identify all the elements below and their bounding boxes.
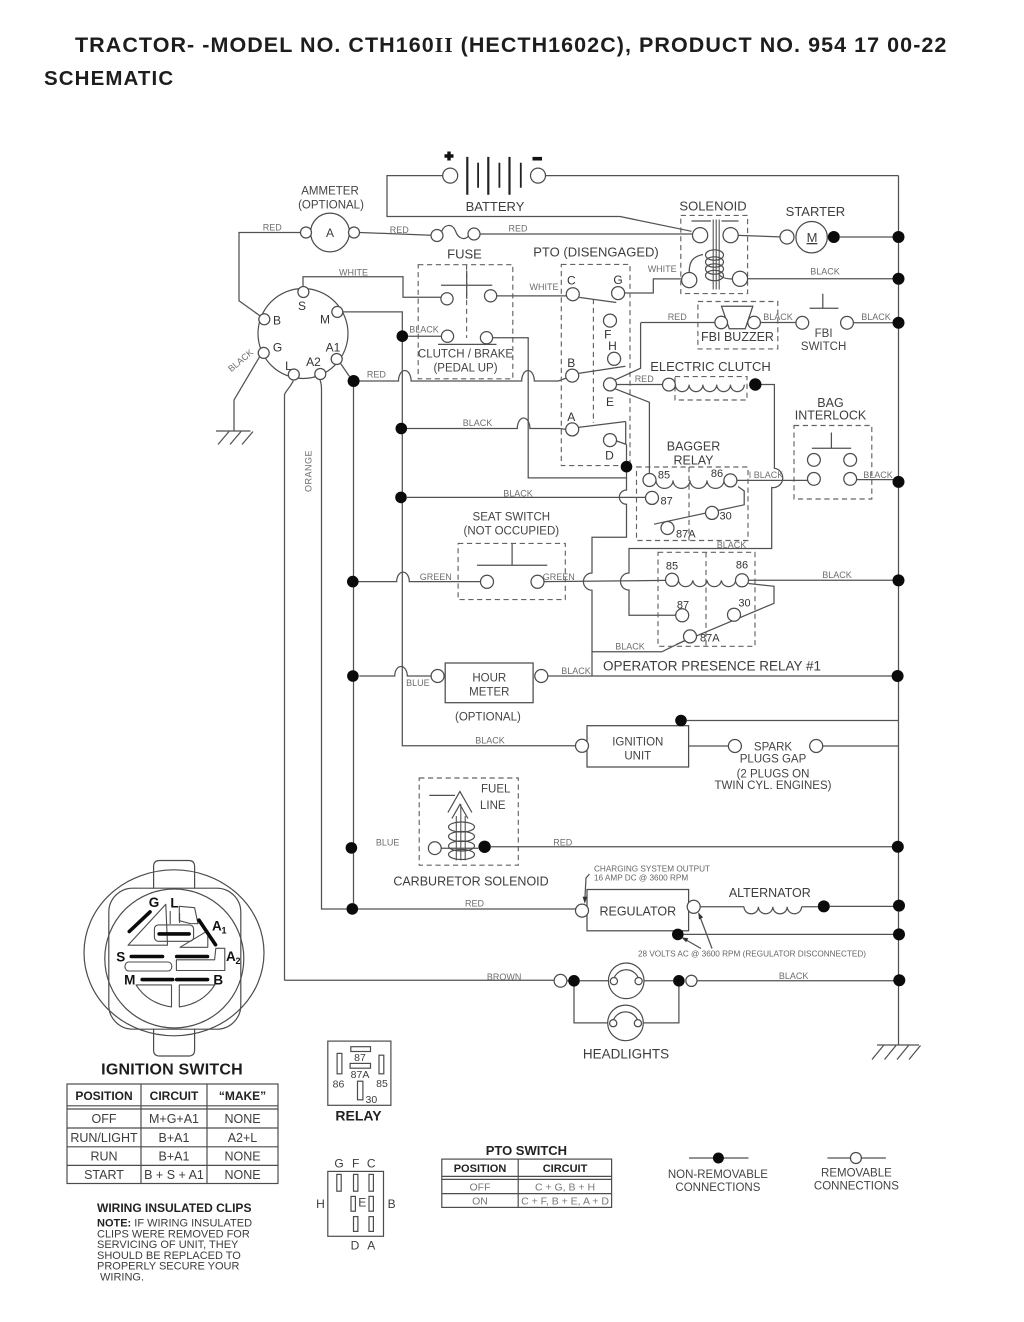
svg-text:L: L [170,896,178,911]
svg-text:INTERLOCK: INTERLOCK [795,408,867,422]
svg-text:E: E [358,1195,366,1209]
svg-text:BAGGER: BAGGER [667,439,721,453]
svg-text:A2: A2 [306,355,321,369]
svg-text:AMMETER: AMMETER [301,186,359,198]
svg-text:SOLENOID: SOLENOID [679,199,746,214]
svg-text:RED: RED [390,225,410,235]
svg-text:RELAY: RELAY [673,453,714,467]
svg-text:A: A [226,949,236,964]
svg-text:C + G, B + H: C + G, B + H [535,1181,595,1193]
svg-text:TWIN CYL. ENGINES): TWIN CYL. ENGINES) [715,780,832,792]
svg-text:CIRCUIT: CIRCUIT [543,1163,588,1175]
svg-text:D: D [605,449,614,463]
svg-text:“MAKE”: “MAKE” [219,1089,266,1103]
svg-text:L: L [285,359,292,373]
svg-text:M+G+A1: M+G+A1 [149,1112,199,1126]
svg-text:RUN: RUN [90,1149,117,1163]
svg-text:METER: METER [469,687,509,699]
svg-text:BLACK: BLACK [763,312,793,322]
svg-text:RED: RED [553,838,573,848]
svg-text:A1: A1 [326,341,341,355]
svg-text:BLACK: BLACK [463,418,493,428]
svg-text:PTO SWITCH: PTO SWITCH [486,1143,567,1158]
svg-text:ELECTRIC CLUTCH: ELECTRIC CLUTCH [650,359,771,374]
svg-text:B: B [567,356,575,370]
svg-text:SEAT SWITCH: SEAT SWITCH [473,512,551,524]
svg-text:S: S [116,950,125,965]
svg-text:BLACK: BLACK [503,488,533,498]
svg-text:CHARGING SYSTEM OUTPUT: CHARGING SYSTEM OUTPUT [594,865,710,874]
svg-text:FUEL: FUEL [481,783,511,795]
svg-text:RED: RED [465,898,485,908]
svg-text:UNIT: UNIT [624,751,651,763]
svg-text:RELAY: RELAY [335,1108,382,1124]
svg-text:SPARK: SPARK [754,742,792,754]
svg-text:S: S [298,299,306,313]
svg-text:H: H [608,339,617,353]
svg-text:ON: ON [472,1195,488,1207]
svg-text:86: 86 [736,560,748,572]
svg-text:BLACK: BLACK [409,325,439,335]
svg-text:PTO (DISENGAGED): PTO (DISENGAGED) [533,245,658,260]
svg-text:M: M [124,972,135,987]
svg-text:B: B [388,1197,396,1211]
svg-text:M: M [807,230,818,245]
svg-text:CONNECTIONS: CONNECTIONS [675,1182,760,1194]
svg-text:BROWN: BROWN [487,972,522,982]
svg-text:OFF: OFF [92,1112,117,1126]
svg-text:G: G [613,273,622,287]
svg-text:2: 2 [236,956,241,966]
svg-text:16 AMP DC @ 3600 RPM: 16 AMP DC @ 3600 RPM [594,874,688,883]
svg-text:WIRING.: WIRING. [100,1272,144,1284]
svg-text:SWITCH: SWITCH [801,341,846,353]
svg-text:H: H [316,1197,325,1211]
svg-text:C: C [567,274,576,288]
svg-text:REGULATOR: REGULATOR [599,904,676,918]
svg-text:C + F, B + E, A + D: C + F, B + E, A + D [521,1195,609,1207]
svg-text:BLACK: BLACK [779,971,809,981]
svg-text:F: F [352,1156,359,1170]
svg-text:85: 85 [376,1078,388,1090]
svg-text:NONE: NONE [224,1112,260,1126]
svg-text:PLUGS GAP: PLUGS GAP [740,754,807,766]
svg-text:B+A1: B+A1 [159,1149,190,1163]
svg-text:START: START [84,1168,124,1182]
svg-text:BLACK: BLACK [475,735,505,745]
svg-text:REMOVABLE: REMOVABLE [821,1167,892,1179]
svg-text:TRACTOR- -MODEL NO. CTH160II (: TRACTOR- -MODEL NO. CTH160II (HECTH1602C… [75,33,947,57]
svg-text:NON-REMOVABLE: NON-REMOVABLE [668,1169,768,1181]
svg-text:85: 85 [666,561,678,573]
svg-text:28 VOLTS AC @ 3600 RPM (REGULA: 28 VOLTS AC @ 3600 RPM (REGULATOR DISCON… [638,950,866,959]
svg-text:LINE: LINE [480,800,506,812]
svg-text:RED: RED [635,374,655,384]
svg-text:POSITION: POSITION [454,1163,507,1175]
svg-text:A: A [212,919,222,934]
svg-text:(OPTIONAL): (OPTIONAL) [455,711,521,723]
svg-text:B + S + A1: B + S + A1 [144,1168,204,1182]
svg-text:WHITE: WHITE [339,268,368,278]
svg-text:G: G [273,341,282,355]
svg-text:GREEN: GREEN [420,572,452,582]
svg-text:OPERATOR PRESENCE RELAY #1: OPERATOR PRESENCE RELAY #1 [603,659,821,674]
svg-text:A: A [367,1239,375,1253]
svg-text:RUN/LIGHT: RUN/LIGHT [70,1131,138,1145]
svg-text:BLUE: BLUE [406,678,430,688]
svg-text:(NOT OCCUPIED): (NOT OCCUPIED) [463,526,559,538]
svg-text:85: 85 [658,470,670,482]
svg-text:87A: 87A [700,633,720,645]
svg-text:87: 87 [677,600,689,612]
svg-text:RED: RED [668,312,688,322]
svg-text:A: A [567,410,575,424]
svg-text:IGNITION: IGNITION [612,737,663,749]
svg-text:BLACK: BLACK [861,312,891,322]
svg-text:FBI: FBI [815,328,833,340]
svg-text:M: M [320,313,330,327]
svg-text:B: B [273,314,281,328]
svg-text:G: G [334,1156,343,1170]
svg-text:GREEN: GREEN [543,572,575,582]
svg-text:BLACK: BLACK [822,570,852,580]
svg-text:WHITE: WHITE [530,282,559,292]
svg-text:A: A [326,226,334,240]
svg-text:FUSE: FUSE [447,247,482,262]
svg-text:HOUR: HOUR [472,672,506,684]
svg-text:BATTERY: BATTERY [466,199,525,214]
svg-text:E: E [606,395,614,409]
svg-text:1: 1 [222,926,227,936]
svg-text:87: 87 [661,496,673,508]
svg-text:NONE: NONE [224,1168,260,1182]
svg-text:CIRCUIT: CIRCUIT [150,1089,199,1103]
svg-text:SCHEMATIC: SCHEMATIC [44,67,174,90]
svg-text:BLACK: BLACK [810,266,840,276]
svg-text:RED: RED [263,222,283,232]
svg-text:FBI BUZZER: FBI BUZZER [701,330,774,344]
svg-text:BLACK: BLACK [226,347,255,374]
svg-text:(PEDAL UP): (PEDAL UP) [433,362,497,374]
svg-text:BLACK: BLACK [615,642,645,652]
svg-text:I BLACK: I BLACK [749,470,784,480]
svg-text:CLUTCH / BRAKE: CLUTCH / BRAKE [418,348,514,360]
svg-text:WIRING INSULATED CLIPS: WIRING INSULATED CLIPS [97,1201,251,1215]
svg-text:C: C [367,1156,376,1170]
svg-text:IGNITION SWITCH: IGNITION SWITCH [101,1062,243,1079]
svg-text:BLACK: BLACK [561,666,591,676]
svg-text:BLACK: BLACK [863,470,893,480]
svg-text:ALTERNATOR: ALTERNATOR [729,886,811,900]
svg-text:BLUE: BLUE [376,838,400,848]
svg-text:STARTER: STARTER [786,204,845,219]
svg-text:D: D [351,1239,360,1253]
svg-text:30: 30 [366,1094,378,1106]
svg-text:POSITION: POSITION [75,1089,132,1103]
svg-text:87A: 87A [351,1069,370,1081]
svg-text:G: G [149,895,160,910]
svg-text:OFF: OFF [470,1181,491,1193]
svg-text:A2+L: A2+L [228,1131,258,1145]
svg-text:B+A1: B+A1 [159,1131,190,1145]
svg-text:CONNECTIONS: CONNECTIONS [814,1180,899,1192]
svg-text:87: 87 [354,1052,366,1064]
svg-text:B: B [213,972,223,987]
svg-text:HEADLIGHTS: HEADLIGHTS [583,1047,669,1062]
svg-text:WHITE: WHITE [648,264,677,274]
svg-text:86: 86 [711,468,723,480]
svg-text:30: 30 [738,598,750,610]
svg-text:30: 30 [720,511,732,523]
svg-text:86: 86 [333,1078,345,1090]
svg-text:CARBURETOR SOLENOID: CARBURETOR SOLENOID [393,875,548,889]
svg-text:(2 PLUGS ON: (2 PLUGS ON [737,768,810,780]
svg-text:ORANGE: ORANGE [304,450,314,492]
svg-text:RED: RED [508,224,528,234]
svg-text:87A: 87A [676,529,696,541]
svg-text:(OPTIONAL): (OPTIONAL) [298,200,364,212]
svg-text:NONE: NONE [224,1149,260,1163]
svg-text:RED: RED [367,369,387,379]
svg-text:BLACK: BLACK [717,540,747,550]
